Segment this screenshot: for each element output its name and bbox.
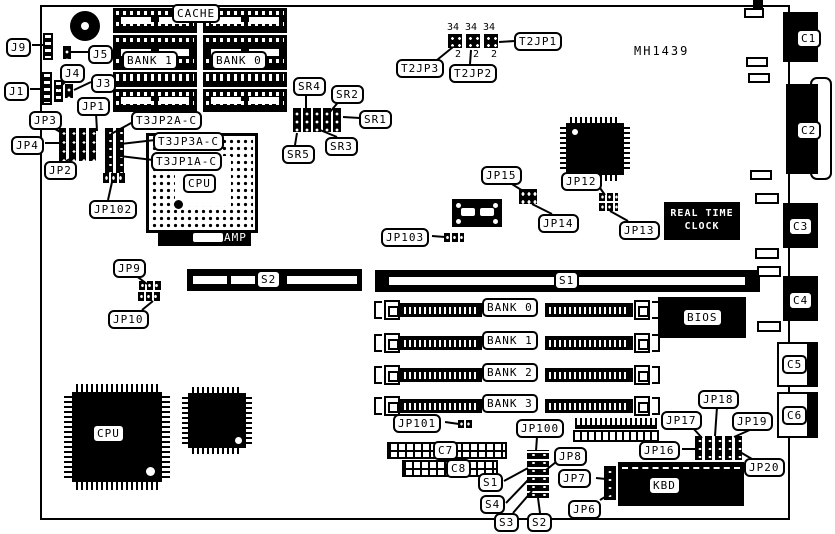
conn-c6-label: C6 [782, 406, 807, 425]
oscillator-pad [493, 219, 498, 224]
callout-jp7: JP7 [558, 469, 591, 488]
dip-socket-row4-right [203, 89, 287, 112]
header-teeth-bar [575, 425, 657, 429]
dip-socket-row4-left [113, 89, 197, 112]
callout-jp16: JP16 [639, 441, 680, 460]
conn-c1-label: C1 [796, 29, 821, 48]
jumper-jp100-block [527, 450, 549, 498]
callout-jp8: JP8 [554, 447, 587, 466]
simm-bank1-endcap [384, 333, 400, 353]
jumper-sr5-block [293, 108, 301, 132]
slot-s2-key [193, 276, 227, 284]
conn-c2-tab [748, 73, 770, 83]
slot-s2-label: S2 [256, 270, 281, 289]
t2jp3-pin34: 34 [447, 22, 459, 33]
jumper-sr2-block [323, 108, 331, 132]
conn-c4-tab [757, 266, 781, 277]
cpu-qfp-pins [76, 384, 158, 392]
jumper-jp102-block [103, 173, 126, 183]
simm-bank1-bracket [374, 334, 382, 352]
simm-bank2-slot [400, 368, 482, 382]
conn-c3-tab [755, 248, 779, 259]
simm-bank3-slot [400, 399, 482, 413]
amp-label: AMP [224, 231, 247, 244]
jumper-jp16-jp20-block [694, 436, 742, 460]
callout-s1: S1 [478, 473, 503, 492]
simm-bank3-bracket [652, 397, 660, 415]
callout-sr1: SR1 [359, 110, 392, 129]
mounting-hole-center [81, 22, 89, 30]
part-number: MH1439 [634, 44, 689, 58]
bios-label: BIOS [682, 308, 723, 327]
simm-bank0-endcap [634, 300, 650, 320]
callout-jp17: JP17 [661, 411, 702, 430]
callout-t3jp1ac: T3JP1A-C [151, 152, 222, 171]
jumper-j9-block [43, 33, 53, 60]
jumper-jp101-block [458, 420, 474, 428]
simm-bank2-label: BANK 2 [482, 363, 538, 382]
callout-s2: S2 [527, 513, 552, 532]
callout-t2jp1: T2JP1 [514, 32, 562, 51]
simm-bank0-endcap [384, 300, 400, 320]
t2jp2-pin34: 34 [465, 22, 477, 33]
coprocessor-qfp-pins [192, 448, 242, 454]
simm-bank1-slot [545, 336, 633, 350]
simm-bank3-bracket [374, 397, 382, 415]
callout-jp101: JP101 [393, 414, 441, 433]
oscillator-pad [456, 203, 461, 208]
callout-t2jp3: T2JP3 [396, 59, 444, 78]
callout-sr3: SR3 [325, 137, 358, 156]
callout-jp20: JP20 [744, 458, 785, 477]
simm-bank1-slot [400, 336, 482, 350]
simm-bank2-slot [545, 368, 633, 382]
callout-j3: J3 [91, 74, 116, 93]
callout-jp3: JP3 [29, 111, 62, 130]
cpu-socket-pin1-dot [174, 200, 183, 209]
callout-jp102: JP102 [89, 200, 137, 219]
simm-bank1-endcap [634, 333, 650, 353]
cache-label: CACHE [172, 4, 220, 23]
jumper-t2jp2-block [466, 34, 480, 48]
jumper-jp7-block [604, 466, 616, 500]
rtc-label-line1: REAL TIME [664, 207, 740, 220]
callout-t2jp2: T2JP2 [449, 64, 497, 83]
jumper-j1-block [42, 72, 52, 105]
chipset-qfp-pins [570, 117, 620, 123]
conn-c3-tab [755, 193, 779, 204]
callout-j9: J9 [6, 38, 31, 57]
callout-jp2: JP2 [44, 161, 77, 180]
simm-bank0-slot [400, 303, 482, 317]
cpu-chip-label: CPU [92, 424, 125, 443]
cpu-qfp-pins [64, 396, 72, 478]
oscillator-pad [493, 203, 498, 208]
simm-bank3-label: BANK 3 [482, 394, 538, 413]
oscillator-pad [456, 219, 461, 224]
callout-jp13: JP13 [619, 221, 660, 240]
conn-c4-tab [757, 321, 781, 332]
cpu-qfp-pins [162, 396, 170, 478]
callout-j1: J1 [4, 82, 29, 101]
cpu-qfp-pins [76, 482, 158, 490]
coprocessor-pin1-dot [235, 437, 242, 444]
conn-c1-tab [744, 8, 764, 18]
motherboard-diagram: CACHE BANK 1 BANK 0 CPU AMP 34 34 34 2 2… [0, 0, 835, 534]
jumper-sr1-block [333, 108, 341, 132]
callout-jp6: JP6 [568, 500, 601, 519]
bank1-dip-label: BANK 1 [122, 51, 178, 70]
callout-jp19: JP19 [732, 412, 773, 431]
simm-bank3-endcap [384, 396, 400, 416]
conn-c7-label: C7 [433, 441, 458, 460]
jumper-jp10-block [138, 292, 161, 301]
jumper-sr4-block [303, 108, 311, 132]
callout-s3: S3 [494, 513, 519, 532]
jumper-t2jp1-block [484, 34, 498, 48]
jumper-j4-block [54, 80, 63, 102]
simm-bank2-endcap [634, 365, 650, 385]
simm-bank2-endcap [384, 365, 400, 385]
t2jp1-pin2: 2 [491, 49, 497, 60]
jumper-j5-block [63, 46, 71, 59]
cpu-chip-pin1-dot [146, 467, 155, 476]
callout-s4: S4 [480, 495, 505, 514]
simm-bank2-bracket [374, 366, 382, 384]
jumper-t2jp3-block [448, 34, 462, 48]
oscillator-slot [480, 208, 494, 216]
oscillator-slot [461, 208, 475, 216]
simm-bank0-slot [545, 303, 633, 317]
kbd-label: KBD [648, 476, 681, 495]
simm-bank1-label: BANK 1 [482, 331, 538, 350]
callout-jp12: JP12 [561, 172, 602, 191]
jumper-jp103-block [444, 233, 464, 242]
simm-bank0-bracket [374, 301, 382, 319]
conn-c4-label: C4 [788, 291, 813, 310]
callout-jp1: JP1 [77, 97, 110, 116]
slot-s2-key [287, 276, 357, 284]
cpu-socket-label: CPU [183, 174, 216, 193]
bank0-dip-label: BANK 0 [211, 51, 267, 70]
jumper-jp12-block [599, 193, 618, 201]
callout-j5: J5 [88, 45, 113, 64]
rtc-label-line2: CLOCK [664, 220, 740, 233]
conn-c1-tab [746, 57, 768, 67]
callout-t3jp2ac: T3JP2A-C [131, 111, 202, 130]
callout-t3jp3ac: T3JP3A-C [153, 132, 224, 151]
t2jp2-pin2: 2 [473, 49, 479, 60]
t2jp3-pin2: 2 [455, 49, 461, 60]
conn-c2-tab [750, 170, 772, 180]
callout-jp4: JP4 [11, 136, 44, 155]
jumper-j3-block [65, 84, 73, 98]
simm-bank3-endcap [634, 396, 650, 416]
callout-jp14: JP14 [538, 214, 579, 233]
chipset-pin1-dot [572, 129, 578, 135]
jumper-jp13-block [599, 203, 618, 211]
conn-c5-label: C5 [782, 355, 807, 374]
simm-bank3-slot [545, 399, 633, 413]
dip-socket-row3-left [113, 72, 197, 87]
slot-s1-label: S1 [554, 271, 579, 290]
dip-socket-row3-right [203, 72, 287, 87]
jumper-t3jp-block [104, 128, 125, 175]
amp-window [193, 233, 223, 242]
jumper-sr3-block [313, 108, 321, 132]
coprocessor-qfp-pins [192, 387, 242, 393]
chipset-qfp-pins [624, 127, 630, 171]
callout-jp100: JP100 [516, 419, 564, 438]
callout-jp18: JP18 [698, 390, 739, 409]
conn-c8-label: C8 [446, 459, 471, 478]
conn-c2-label: C2 [796, 121, 821, 140]
callout-jp103: JP103 [381, 228, 429, 247]
t2jp1-pin34: 34 [483, 22, 495, 33]
callout-sr2: SR2 [331, 85, 364, 104]
callout-jp15: JP15 [481, 166, 522, 185]
chipset-qfp-pins [560, 127, 566, 171]
callout-sr5: SR5 [282, 145, 315, 164]
kbd-dashed-line [622, 467, 740, 469]
coprocessor-qfp-pins [246, 397, 252, 444]
simm-bank2-bracket [652, 366, 660, 384]
coprocessor-qfp-pins [182, 397, 188, 444]
callout-jp10: JP10 [108, 310, 149, 329]
jumper-jp15-block [519, 189, 537, 204]
jumper-jp9-block [139, 281, 161, 290]
callout-jp9: JP9 [113, 259, 146, 278]
rtc-label: REAL TIME CLOCK [664, 207, 740, 233]
callout-j4: J4 [60, 64, 85, 83]
simm-bank0-label: BANK 0 [482, 298, 538, 317]
jumper-jp2-jp3-jp4-block [58, 128, 96, 161]
conn-c3-label: C3 [788, 217, 813, 236]
slot-s2-key [231, 276, 255, 284]
callout-sr4: SR4 [293, 77, 326, 96]
